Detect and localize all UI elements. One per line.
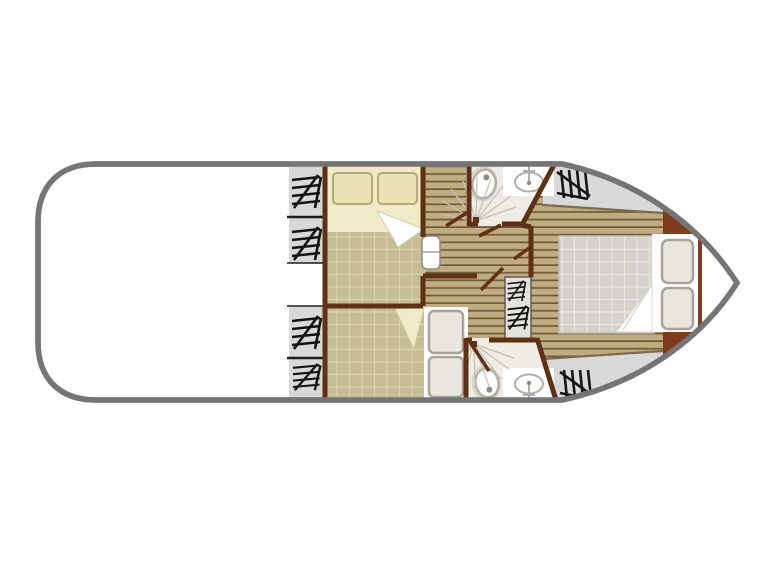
central-stairs — [505, 277, 531, 340]
pillow-icon — [662, 288, 693, 329]
pillow-icon — [662, 240, 693, 283]
forward-cabin — [325, 162, 425, 306]
bow-bedroom-bed — [559, 234, 698, 333]
sink-drain — [527, 181, 531, 185]
pillow-icon — [378, 173, 417, 204]
corridor-door-leaf — [422, 236, 440, 269]
boat-floor-plan — [0, 0, 768, 576]
sink-drain — [527, 381, 531, 385]
pillow-icon — [333, 173, 372, 204]
pillow-icon — [429, 357, 463, 397]
stairs-panel — [289, 359, 325, 397]
pillow-icon — [429, 311, 463, 353]
lower-cabin — [325, 306, 468, 402]
